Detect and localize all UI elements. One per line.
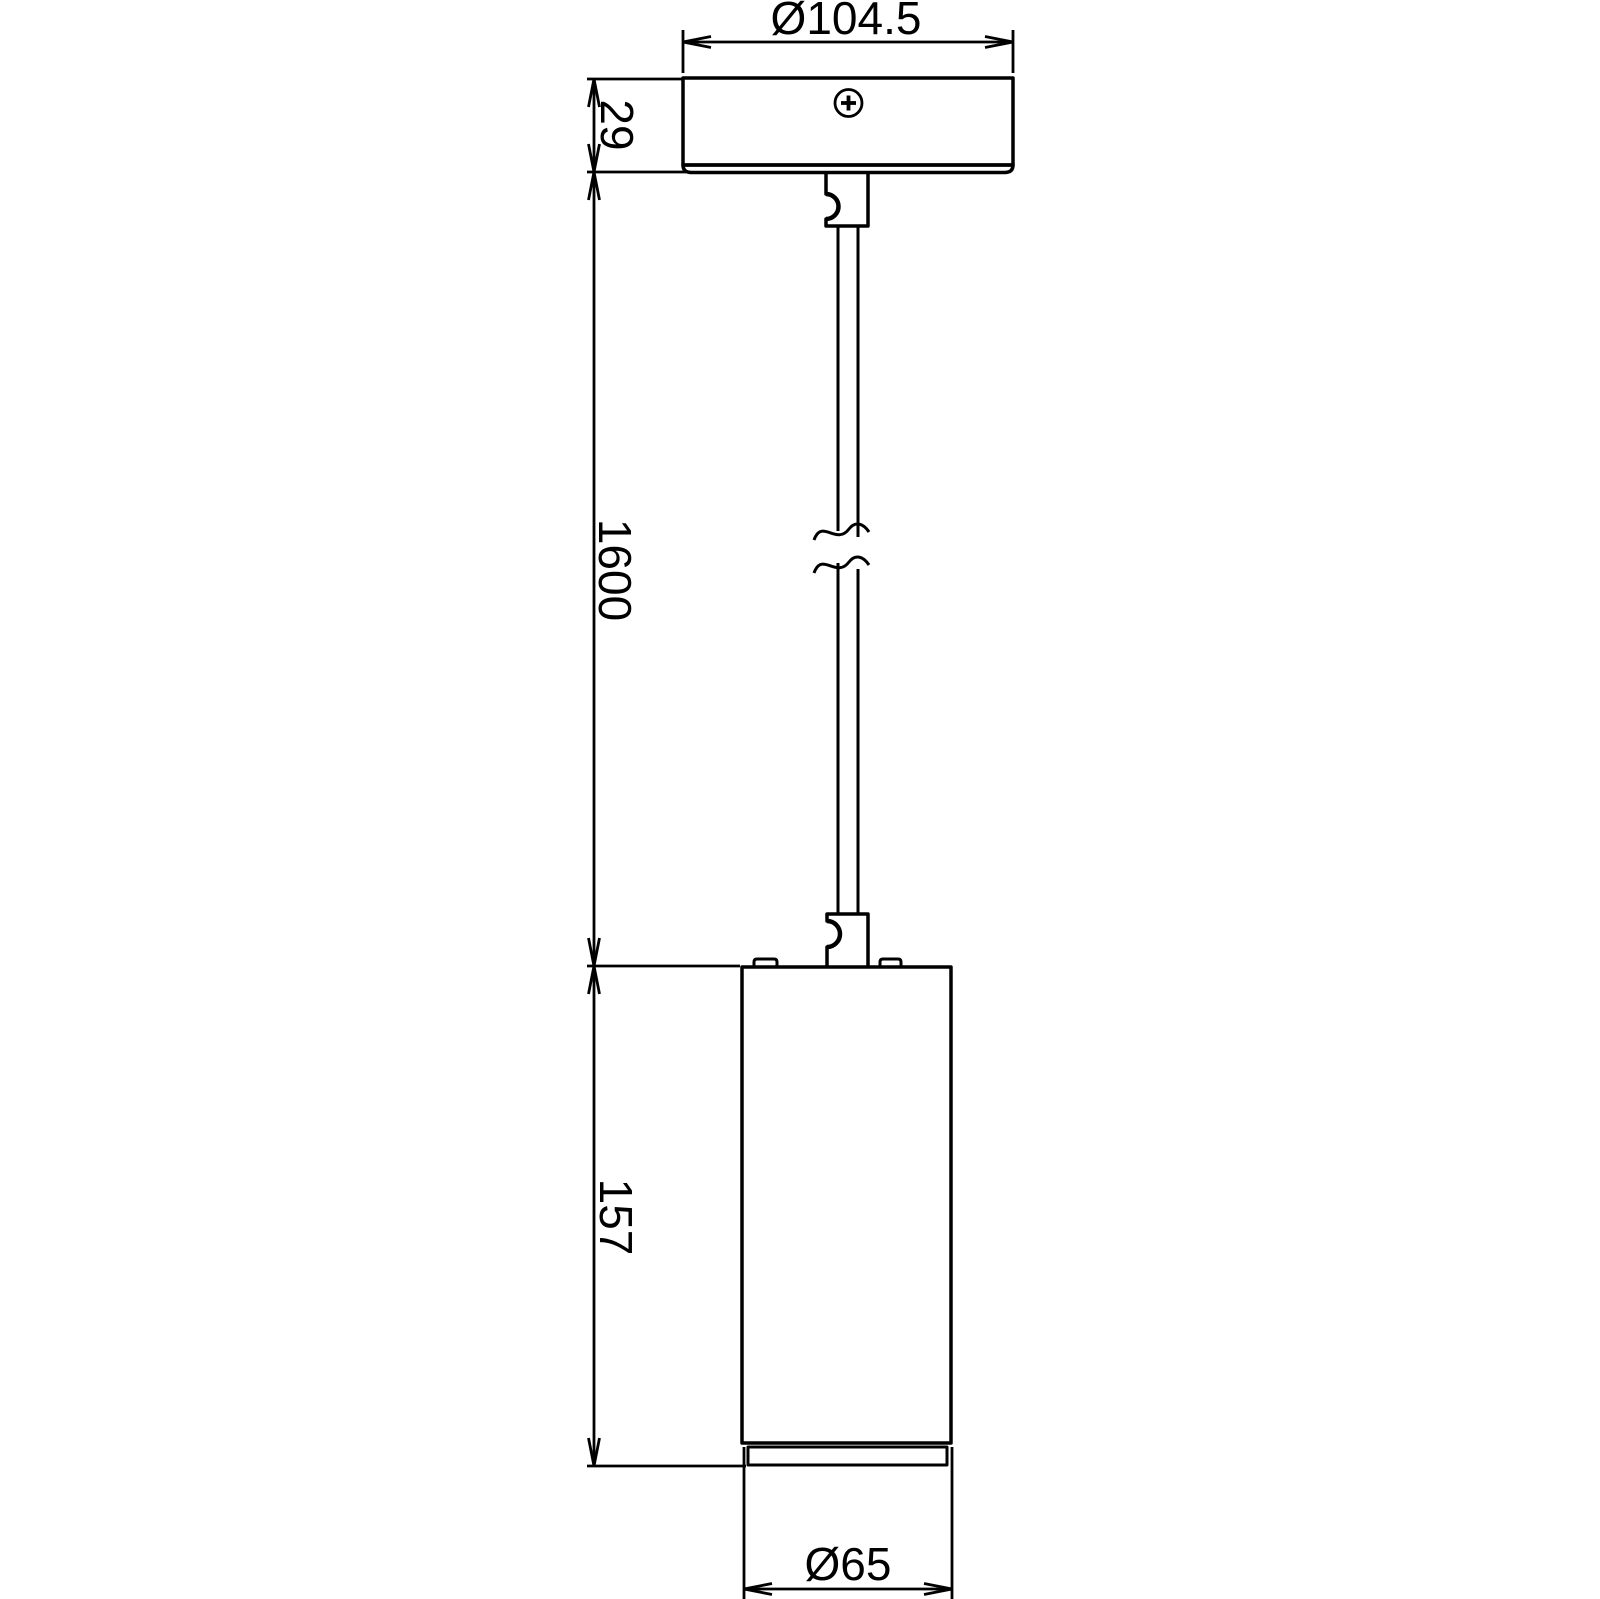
dimension-label-canopy-diameter: Ø104.5	[771, 0, 922, 44]
lamp-strain-relief-notch	[827, 921, 840, 947]
dimension-cable-length: 1600	[589, 172, 642, 966]
cable-break-symbol	[814, 524, 869, 573]
dimension-canopy-diameter: Ø104.5	[683, 0, 1013, 73]
dimension-canopy-height: 29	[587, 79, 686, 172]
top-nub-left	[754, 959, 777, 966]
ceiling-canopy	[683, 78, 1013, 226]
dimension-label-body-diameter: Ø65	[805, 1538, 892, 1590]
drawing-canvas: Ø104.5 29 1600 157	[0, 0, 1600, 1599]
dimension-label-cable-length: 1600	[589, 519, 641, 621]
dimension-body-height: 157	[587, 966, 746, 1466]
break-squiggle-upper	[814, 524, 869, 540]
screw-head-icon	[835, 90, 862, 117]
top-nub-right	[880, 959, 901, 966]
canopy-bottom-lip	[683, 165, 1013, 173]
lamp-body	[742, 914, 951, 1465]
dimension-label-canopy-height: 29	[591, 99, 643, 150]
canopy-body-outline	[683, 78, 1013, 165]
strain-relief-notch	[826, 194, 839, 219]
suspension-cable	[814, 226, 869, 914]
trim-ring	[748, 1447, 947, 1465]
break-squiggle-lower	[814, 557, 869, 573]
dimension-body-diameter: Ø65	[744, 1447, 952, 1599]
pendant-light-dimension-drawing: Ø104.5 29 1600 157	[0, 0, 1600, 1599]
lamp-cylinder-outline	[742, 967, 951, 1443]
dimension-label-body-height: 157	[590, 1179, 642, 1256]
